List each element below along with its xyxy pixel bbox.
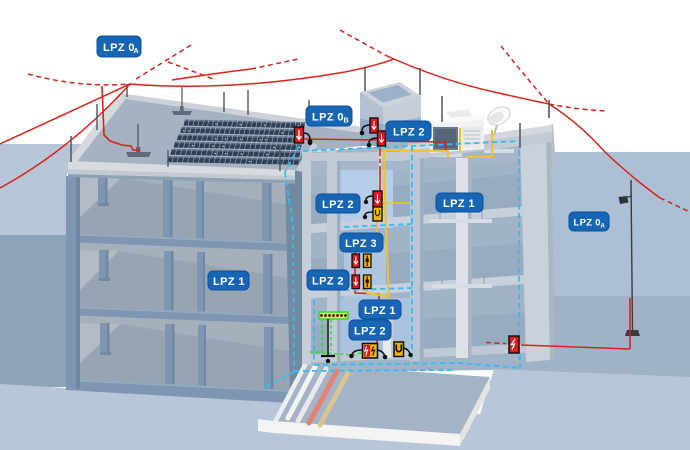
- svg-text:LPZ 0: LPZ 0: [103, 42, 135, 54]
- svg-text:B: B: [344, 118, 349, 125]
- svg-text:LPZ 1: LPZ 1: [443, 198, 475, 210]
- svg-text:LPZ 3: LPZ 3: [345, 238, 377, 250]
- svg-text:LPZ 2: LPZ 2: [393, 127, 425, 139]
- svg-text:A: A: [134, 48, 139, 55]
- svg-text:A: A: [601, 224, 606, 230]
- svg-text:LPZ 2: LPZ 2: [312, 276, 344, 288]
- svg-text:LPZ 0: LPZ 0: [312, 112, 344, 124]
- svg-text:LPZ 2: LPZ 2: [322, 199, 354, 211]
- svg-text:LPZ 2: LPZ 2: [354, 326, 386, 338]
- svg-text:LPZ 1: LPZ 1: [213, 276, 245, 288]
- svg-text:LPZ 0: LPZ 0: [574, 218, 601, 229]
- svg-text:LPZ 1: LPZ 1: [364, 305, 396, 317]
